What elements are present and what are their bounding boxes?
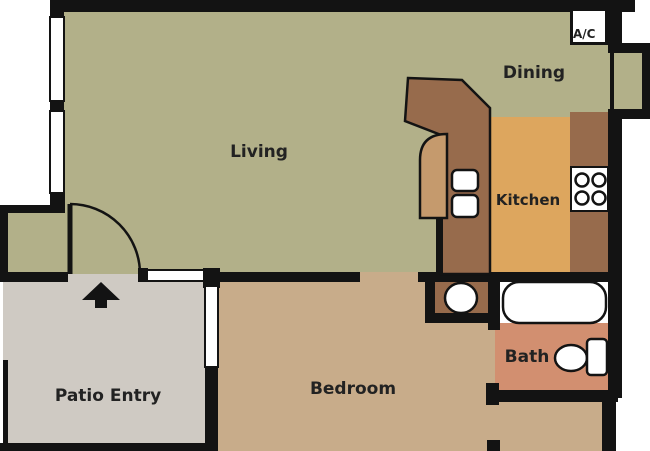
ac-unit: A/C [570, 8, 608, 45]
entry-arrow-icon [82, 282, 120, 308]
label-bedroom: Bedroom [310, 379, 396, 399]
curved-counter [420, 134, 447, 218]
floor-plan: A/C Living Dining Kitchen Bath Bedroom P… [0, 0, 650, 451]
kitchen-sink-basin-top [452, 170, 478, 191]
door-swing-arc [70, 204, 140, 274]
burner-icon [576, 192, 589, 205]
toilet-bowl [555, 345, 587, 371]
kitchen-sink-basin-bottom [452, 195, 478, 217]
burner-icon [576, 174, 589, 187]
vanity-sink [445, 283, 477, 313]
bathtub [503, 282, 606, 323]
toilet-tank [587, 339, 607, 375]
label-kitchen: Kitchen [496, 191, 560, 209]
ac-label: A/C [573, 27, 595, 41]
label-patio-entry: Patio Entry [55, 386, 161, 406]
label-dining: Dining [503, 63, 565, 83]
burner-icon [593, 192, 606, 205]
label-bath: Bath [505, 347, 550, 367]
wall-stub-peninsula [436, 218, 443, 274]
label-living: Living [230, 142, 288, 162]
burner-icon [593, 174, 606, 187]
